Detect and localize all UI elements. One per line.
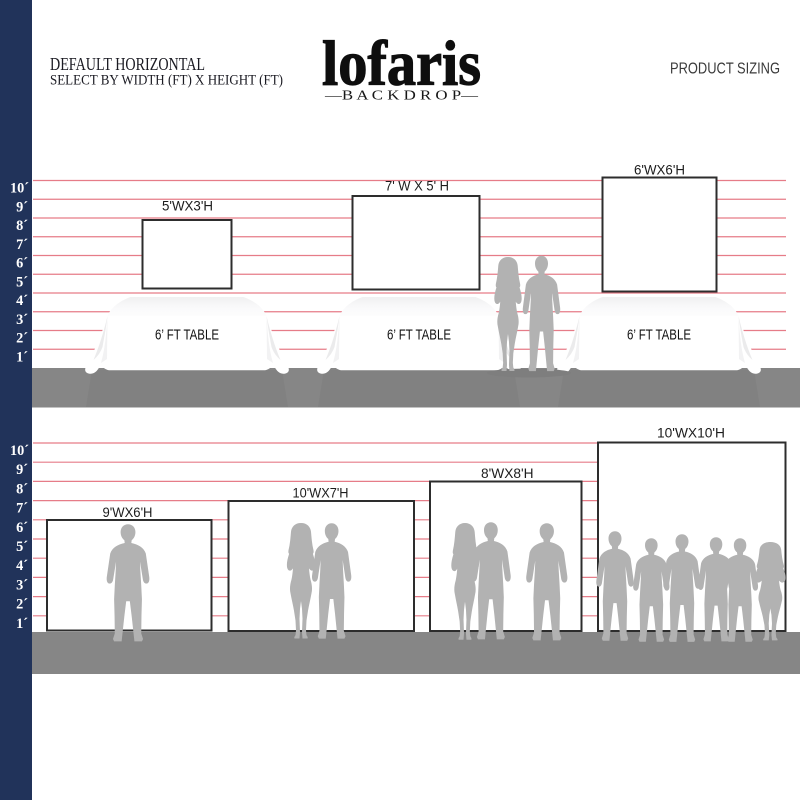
svg-text:6´: 6´	[16, 520, 28, 536]
svg-text:6´: 6´	[16, 256, 28, 272]
svg-text:10'WX7'H: 10'WX7'H	[293, 486, 349, 501]
svg-text:10'WX10'H: 10'WX10'H	[657, 426, 725, 441]
svg-text:SELECT BY WIDTH (FT) X HEIGHT: SELECT BY WIDTH (FT) X HEIGHT (FT)	[50, 72, 283, 89]
svg-text:7´: 7´	[16, 501, 28, 517]
svg-text:1´: 1´	[16, 349, 28, 365]
svg-text:5´: 5´	[16, 274, 28, 290]
svg-text:6’ FT TABLE: 6’ FT TABLE	[155, 328, 219, 344]
svg-text:—B A C K D R O P—: —B A C K D R O P—	[324, 88, 479, 103]
svg-text:9´: 9´	[16, 462, 28, 478]
svg-text:2´: 2´	[16, 597, 28, 613]
svg-text:5'WX3'H: 5'WX3'H	[162, 199, 213, 214]
svg-text:8'WX8'H: 8'WX8'H	[481, 466, 534, 481]
svg-text:9´: 9´	[16, 199, 28, 215]
svg-text:4´: 4´	[16, 293, 28, 309]
svg-text:10´: 10´	[10, 181, 29, 197]
svg-text:8´: 8´	[16, 218, 28, 234]
svg-text:4´: 4´	[16, 558, 28, 574]
svg-text:5´: 5´	[16, 539, 28, 555]
svg-text:6’ FT TABLE: 6’ FT TABLE	[627, 328, 691, 344]
svg-text:6'WX6'H: 6'WX6'H	[634, 163, 685, 178]
svg-text:6’ FT TABLE: 6’ FT TABLE	[387, 328, 451, 344]
svg-text:2´: 2´	[16, 331, 28, 347]
svg-text:8´: 8´	[16, 481, 28, 497]
svg-text:3´: 3´	[16, 577, 28, 593]
svg-text:3´: 3´	[16, 312, 28, 328]
svg-text:1´: 1´	[16, 616, 28, 632]
svg-text:10´: 10´	[10, 443, 29, 459]
svg-text:7´: 7´	[16, 237, 28, 253]
svg-text:9'WX6'H: 9'WX6'H	[103, 505, 153, 520]
svg-text:7' W X 5' H: 7' W X 5' H	[385, 179, 449, 194]
svg-text:PRODUCT SIZING: PRODUCT SIZING	[670, 61, 780, 78]
